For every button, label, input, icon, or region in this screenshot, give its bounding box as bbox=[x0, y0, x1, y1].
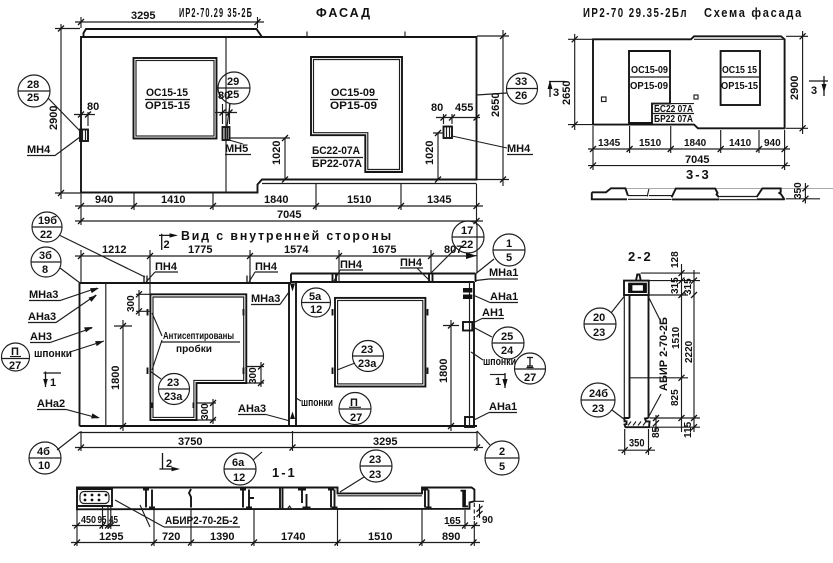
svg-text:26: 26 bbox=[515, 90, 527, 102]
svg-text:23: 23 bbox=[167, 377, 179, 389]
svg-text:80: 80 bbox=[431, 102, 443, 114]
svg-text:90: 90 bbox=[482, 515, 494, 526]
svg-text:2: 2 bbox=[499, 446, 505, 458]
svg-text:12: 12 bbox=[233, 472, 245, 484]
svg-text:1390: 1390 bbox=[210, 531, 234, 543]
svg-text:45: 45 bbox=[109, 515, 118, 526]
svg-text:МНа3: МНа3 bbox=[251, 293, 280, 305]
svg-text:АН1: АН1 bbox=[482, 307, 504, 319]
svg-text:29: 29 bbox=[227, 76, 239, 88]
svg-text:23: 23 bbox=[592, 403, 604, 415]
svg-text:2-2: 2-2 bbox=[628, 249, 653, 264]
svg-text:1345: 1345 bbox=[598, 138, 621, 149]
svg-text:Схема фасада: Схема фасада bbox=[704, 5, 803, 20]
svg-text:720: 720 bbox=[162, 531, 180, 543]
svg-text:АНа2: АНа2 bbox=[37, 398, 65, 410]
svg-text:2900: 2900 bbox=[48, 106, 60, 130]
svg-text:23а: 23а bbox=[164, 391, 183, 403]
svg-text:2900: 2900 bbox=[789, 76, 801, 100]
svg-text:1510: 1510 bbox=[368, 531, 392, 543]
svg-text:23: 23 bbox=[369, 454, 381, 466]
svg-text:450: 450 bbox=[81, 515, 96, 526]
svg-text:6а: 6а bbox=[232, 457, 245, 469]
svg-text:1-1: 1-1 bbox=[272, 465, 297, 480]
svg-text:1: 1 bbox=[50, 377, 56, 389]
svg-text:2650: 2650 bbox=[490, 93, 502, 117]
svg-text:128: 128 bbox=[670, 251, 681, 268]
svg-text:2: 2 bbox=[166, 458, 172, 470]
svg-text:1: 1 bbox=[495, 376, 501, 388]
svg-text:1510: 1510 bbox=[671, 326, 682, 349]
svg-text:1020: 1020 bbox=[424, 141, 436, 165]
svg-text:АБИР2-70-2Б-2: АБИР2-70-2Б-2 bbox=[165, 515, 238, 527]
svg-text:ИР2-70.29 35-2Б: ИР2-70.29 35-2Б bbox=[179, 5, 253, 20]
svg-text:ОС15-15: ОС15-15 bbox=[146, 87, 188, 99]
svg-text:27: 27 bbox=[9, 360, 21, 372]
svg-text:МНа1: МНа1 bbox=[489, 267, 518, 279]
svg-text:МН4: МН4 bbox=[507, 143, 531, 155]
svg-text:23: 23 bbox=[369, 469, 381, 481]
svg-text:ОС15-09: ОС15-09 bbox=[331, 87, 375, 99]
svg-text:80: 80 bbox=[218, 90, 230, 102]
svg-text:85: 85 bbox=[651, 426, 662, 438]
svg-text:3750: 3750 bbox=[178, 436, 202, 448]
svg-text:19б: 19б bbox=[38, 215, 57, 227]
svg-text:1212: 1212 bbox=[102, 244, 126, 256]
svg-text:шпонки: шпонки bbox=[34, 348, 72, 360]
svg-text:23: 23 bbox=[593, 327, 605, 339]
svg-text:1345: 1345 bbox=[427, 194, 451, 206]
svg-text:ОР15-15: ОР15-15 bbox=[145, 100, 190, 112]
svg-text:80: 80 bbox=[87, 101, 99, 113]
svg-text:7045: 7045 bbox=[685, 154, 709, 166]
svg-text:940: 940 bbox=[95, 194, 113, 206]
svg-text:20: 20 bbox=[593, 312, 605, 324]
svg-text:2650: 2650 bbox=[561, 81, 573, 105]
svg-text:1574: 1574 bbox=[284, 244, 309, 256]
svg-text:300: 300 bbox=[248, 367, 259, 384]
svg-text:2220: 2220 bbox=[684, 340, 695, 363]
svg-text:1: 1 bbox=[506, 238, 512, 250]
svg-text:3: 3 bbox=[553, 87, 559, 99]
svg-text:ПН4: ПН4 bbox=[255, 261, 278, 273]
svg-text:АНа1: АНа1 bbox=[490, 291, 518, 303]
svg-text:АНа3: АНа3 bbox=[28, 311, 56, 323]
svg-text:1800: 1800 bbox=[438, 359, 450, 383]
svg-text:350: 350 bbox=[629, 438, 645, 450]
svg-text:7045: 7045 bbox=[277, 209, 301, 221]
svg-text:1840: 1840 bbox=[684, 138, 707, 149]
svg-text:МНа3: МНа3 bbox=[29, 289, 58, 301]
svg-text:шпонки: шпонки bbox=[301, 397, 333, 409]
svg-text:1840: 1840 bbox=[264, 194, 288, 206]
svg-text:3б: 3б bbox=[39, 250, 52, 262]
svg-text:ОР15-09: ОР15-09 bbox=[330, 100, 377, 112]
svg-text:ОР15-09: ОР15-09 bbox=[630, 81, 668, 92]
svg-text:1775: 1775 bbox=[188, 244, 212, 256]
svg-text:5: 5 bbox=[499, 461, 505, 473]
svg-text:3295: 3295 bbox=[373, 436, 397, 448]
svg-text:350: 350 bbox=[793, 182, 804, 199]
svg-text:27: 27 bbox=[524, 372, 536, 384]
svg-text:28: 28 bbox=[27, 79, 39, 91]
svg-text:165: 165 bbox=[444, 516, 461, 527]
svg-text:27: 27 bbox=[350, 412, 362, 424]
svg-text:ИР2-70 29.35-2Бл: ИР2-70 29.35-2Бл bbox=[583, 5, 688, 20]
svg-text:8: 8 bbox=[42, 264, 48, 276]
svg-text:890: 890 bbox=[442, 531, 460, 543]
svg-text:Вид с внутренней стороны: Вид с внутренней стороны bbox=[181, 228, 393, 243]
svg-text:1510: 1510 bbox=[347, 194, 371, 206]
svg-text:22: 22 bbox=[461, 239, 473, 251]
svg-text:25: 25 bbox=[27, 92, 39, 104]
svg-text:ОС15 15: ОС15 15 bbox=[722, 65, 757, 76]
svg-text:Антисептированы: Антисептированы bbox=[163, 331, 234, 342]
svg-text:АН3: АН3 bbox=[30, 331, 52, 343]
svg-text:12: 12 bbox=[310, 304, 322, 316]
svg-text:10: 10 bbox=[38, 460, 50, 472]
svg-text:БР22-07А: БР22-07А bbox=[312, 158, 362, 170]
svg-text:3295: 3295 bbox=[131, 10, 155, 22]
svg-text:115: 115 bbox=[683, 421, 694, 438]
svg-text:17: 17 bbox=[461, 225, 473, 237]
svg-text:3: 3 bbox=[811, 85, 817, 97]
svg-text:455: 455 bbox=[455, 102, 473, 114]
svg-text:3-3: 3-3 bbox=[686, 167, 711, 182]
svg-text:ФАСАД: ФАСАД bbox=[316, 5, 372, 20]
svg-text:1800: 1800 bbox=[110, 366, 122, 390]
svg-text:ПН4: ПН4 bbox=[340, 259, 363, 271]
svg-text:300: 300 bbox=[126, 295, 137, 312]
svg-text:33: 33 bbox=[515, 76, 527, 88]
svg-text:1410: 1410 bbox=[161, 194, 185, 206]
svg-text:315: 315 bbox=[670, 277, 681, 294]
svg-text:24б: 24б bbox=[589, 388, 608, 400]
svg-text:1295: 1295 bbox=[99, 531, 123, 543]
svg-text:300: 300 bbox=[200, 403, 211, 420]
svg-text:шпонки: шпонки bbox=[483, 356, 516, 368]
svg-text:315: 315 bbox=[683, 278, 694, 295]
svg-text:940: 940 bbox=[764, 138, 781, 149]
svg-text:АНа1: АНа1 bbox=[489, 401, 517, 413]
svg-text:МН4: МН4 bbox=[27, 144, 51, 156]
svg-text:1510: 1510 bbox=[639, 138, 662, 149]
svg-text:4б: 4б bbox=[37, 446, 50, 458]
svg-text:ОС15-09: ОС15-09 bbox=[631, 65, 668, 76]
svg-text:825: 825 bbox=[670, 389, 681, 406]
svg-text:5: 5 bbox=[506, 252, 512, 264]
svg-text:АБИР 2-70-2Б: АБИР 2-70-2Б bbox=[658, 317, 670, 391]
svg-text:1675: 1675 bbox=[372, 244, 396, 256]
svg-text:25: 25 bbox=[501, 331, 513, 343]
svg-text:МН5: МН5 bbox=[225, 143, 248, 155]
svg-text:1020: 1020 bbox=[271, 141, 283, 165]
svg-text:ПН4: ПН4 bbox=[155, 261, 178, 273]
svg-text:22: 22 bbox=[40, 229, 52, 241]
svg-text:23: 23 bbox=[361, 344, 373, 356]
svg-text:пробки: пробки bbox=[176, 343, 212, 355]
svg-text:95: 95 bbox=[98, 515, 107, 526]
svg-text:2: 2 bbox=[164, 239, 170, 251]
svg-text:БС22-07А: БС22-07А bbox=[312, 145, 360, 157]
svg-text:АНа3: АНа3 bbox=[238, 403, 266, 415]
svg-text:1740: 1740 bbox=[281, 531, 305, 543]
svg-text:1410: 1410 bbox=[729, 138, 752, 149]
svg-text:5а: 5а bbox=[309, 291, 322, 303]
svg-text:ОР15-15: ОР15-15 bbox=[721, 81, 758, 92]
svg-text:23а: 23а bbox=[358, 358, 377, 370]
svg-text:ПН4: ПН4 bbox=[400, 257, 423, 269]
svg-text:БР22 07А: БР22 07А bbox=[654, 114, 693, 125]
